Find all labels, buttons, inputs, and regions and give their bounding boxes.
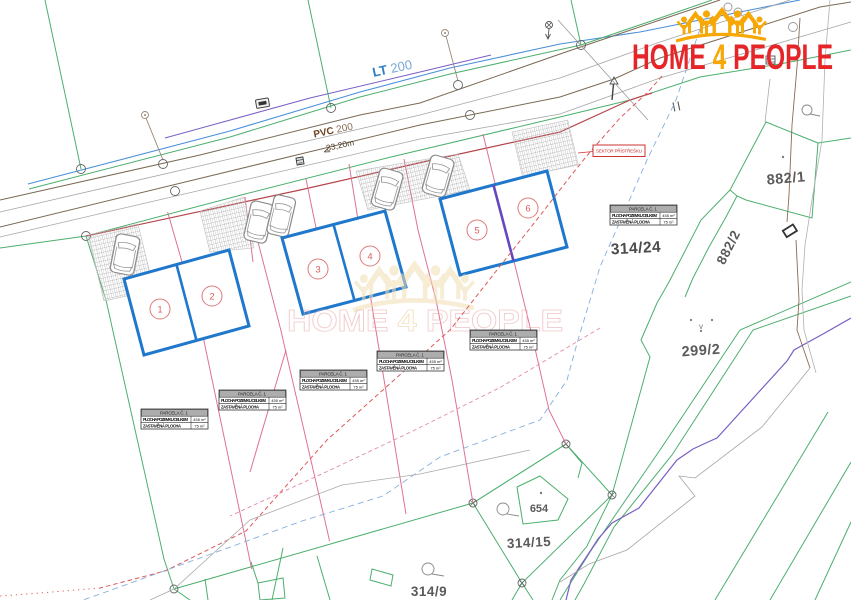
- svg-text:6: 6: [525, 203, 530, 214]
- svg-text:299/2: 299/2: [681, 342, 721, 361]
- svg-text:314/24: 314/24: [610, 239, 661, 259]
- svg-text:654: 654: [530, 503, 549, 515]
- svg-text:314/9: 314/9: [411, 584, 447, 599]
- svg-text:v: v: [699, 322, 703, 331]
- svg-text:HOME 4 PEOPLE: HOME 4 PEOPLE: [632, 38, 833, 77]
- svg-text:882/1: 882/1: [766, 169, 806, 188]
- svg-text:314/15: 314/15: [507, 534, 552, 551]
- svg-text:1: 1: [157, 304, 162, 315]
- svg-text:5: 5: [474, 225, 479, 236]
- svg-text:SEKTOR PŘÍSTŘEŠKU: SEKTOR PŘÍSTŘEŠKU: [596, 147, 642, 154]
- svg-text:4: 4: [367, 251, 372, 262]
- svg-text:3: 3: [315, 264, 320, 275]
- svg-text:2: 2: [209, 291, 214, 302]
